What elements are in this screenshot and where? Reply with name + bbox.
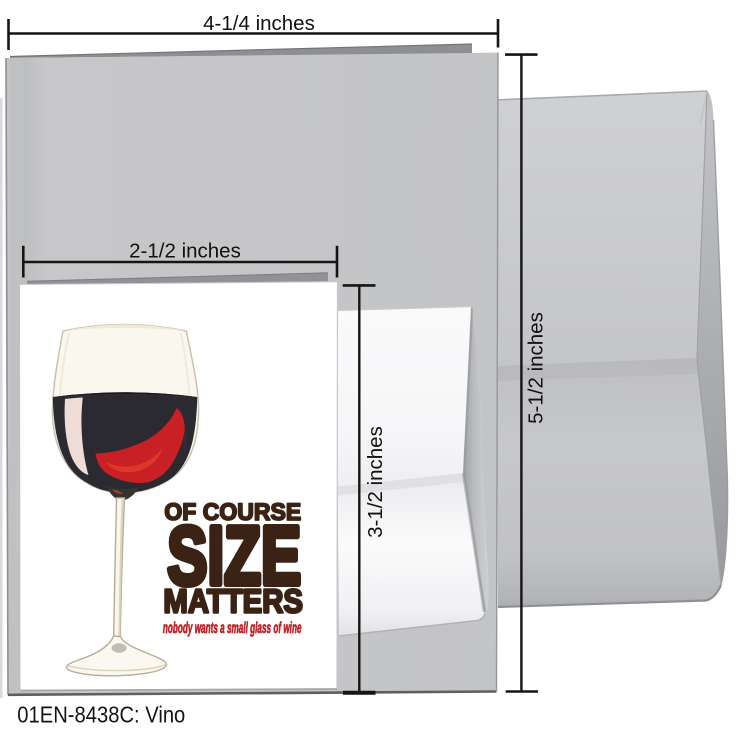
svg-text:2-1/2 inches: 2-1/2 inches xyxy=(129,240,241,263)
svg-text:MATTERS: MATTERS xyxy=(163,582,303,620)
svg-text:3-1/2 inches: 3-1/2 inches xyxy=(364,426,387,538)
svg-text:nobody wants a small glass of: nobody wants a small glass of wine xyxy=(163,620,302,637)
svg-text:5-1/2 inches: 5-1/2 inches xyxy=(525,312,548,424)
svg-text:4-1/4 inches: 4-1/4 inches xyxy=(203,12,315,35)
svg-text:01EN-8438C: Vino: 01EN-8438C: Vino xyxy=(17,702,185,728)
